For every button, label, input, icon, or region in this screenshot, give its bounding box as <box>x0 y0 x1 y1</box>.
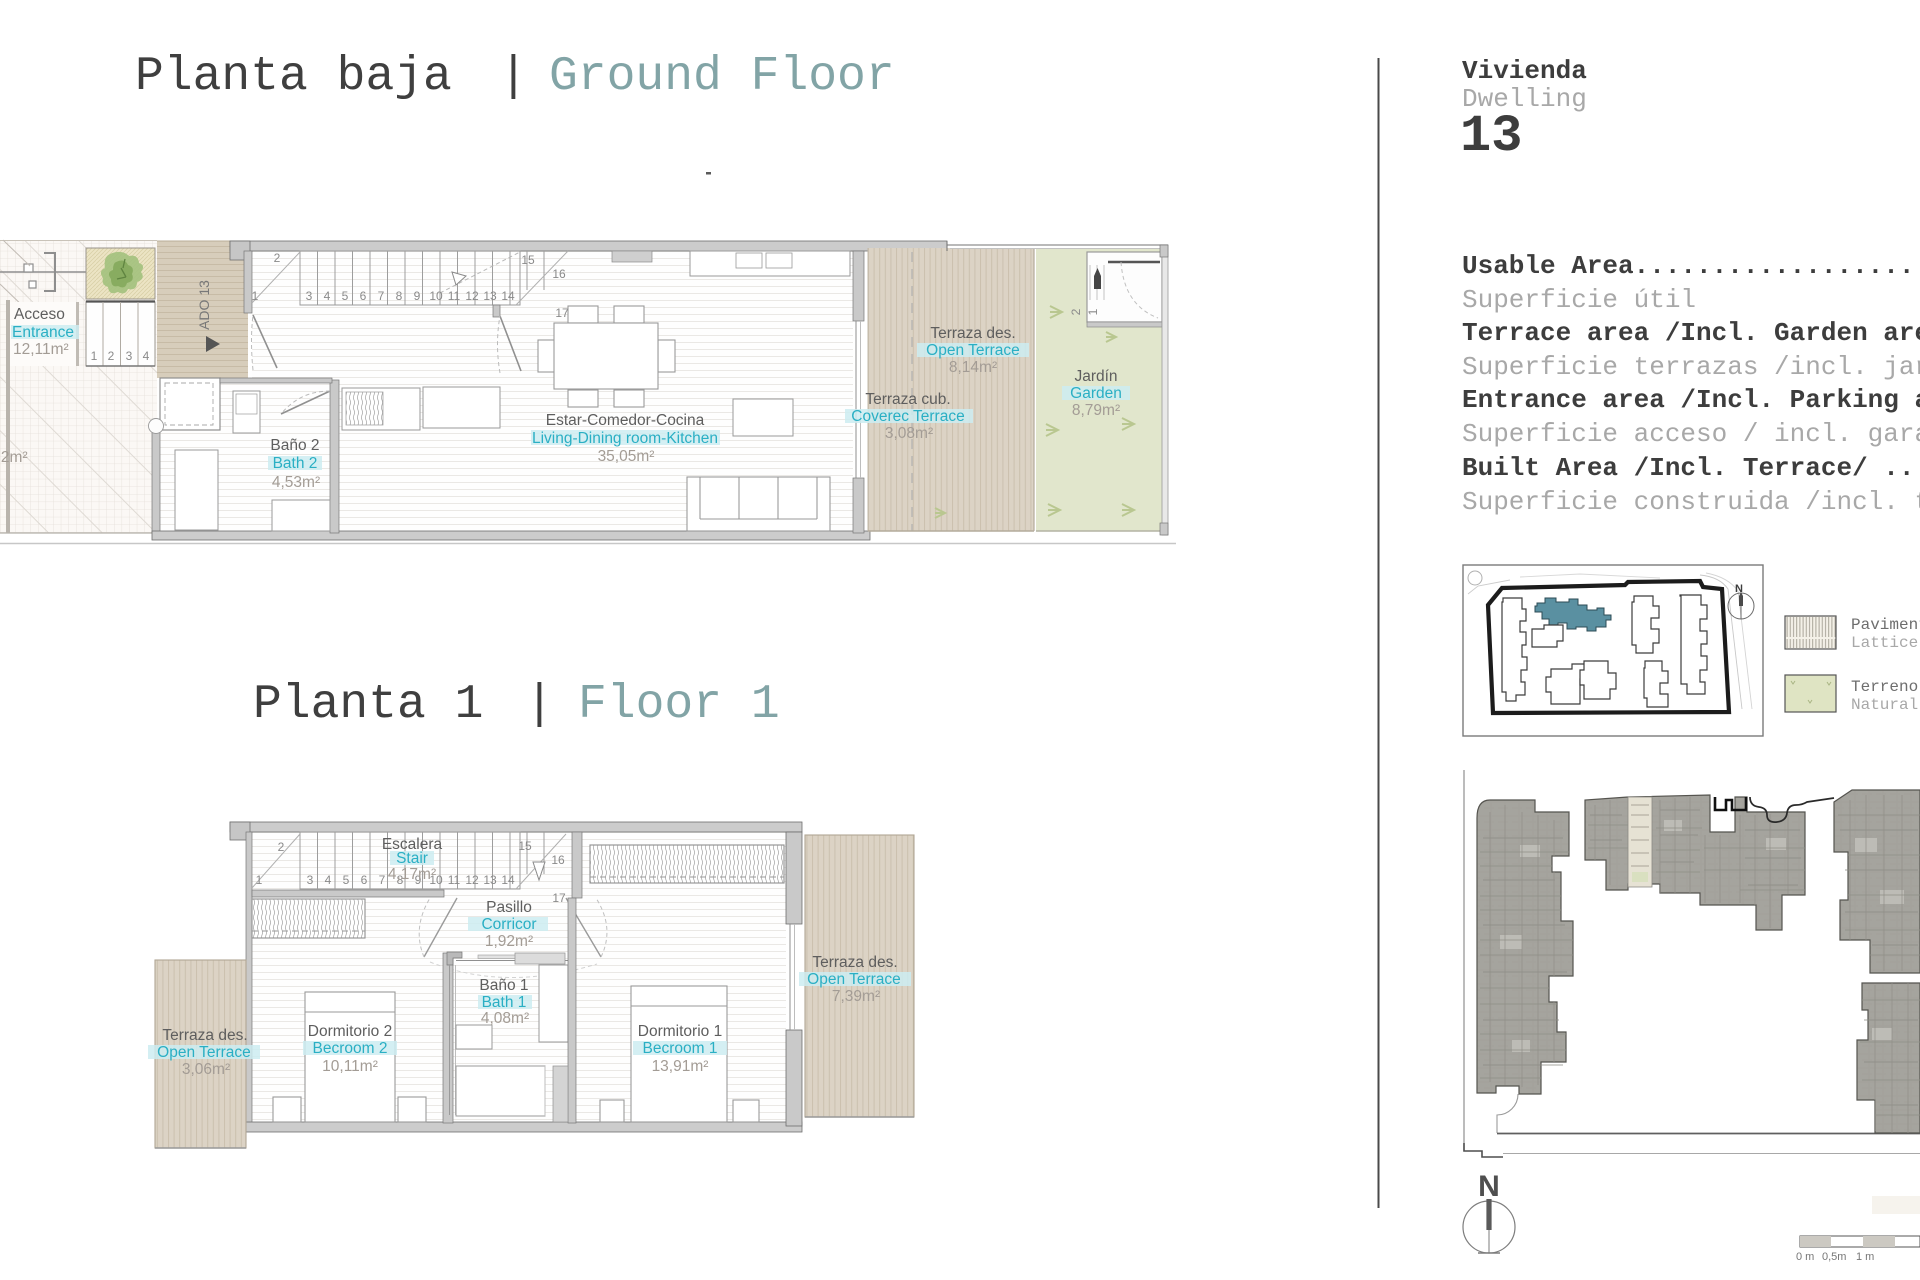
svg-text:7,39m²: 7,39m² <box>832 988 880 1005</box>
svg-text:Open Terrace: Open Terrace <box>157 1044 251 1061</box>
svg-text:5: 5 <box>343 873 350 887</box>
svg-text:8,14m²: 8,14m² <box>949 359 997 376</box>
svg-text:Acceso: Acceso <box>14 306 65 323</box>
svg-text:35,05m²: 35,05m² <box>598 448 655 465</box>
svg-text:Becroom 2: Becroom 2 <box>313 1040 388 1057</box>
svg-text:Entrance: Entrance <box>12 324 74 341</box>
svg-text:Estar-Comedor-Cocina: Estar-Comedor-Cocina <box>546 412 705 429</box>
svg-text:Coverec Terrace: Coverec Terrace <box>851 408 964 425</box>
svg-text:16: 16 <box>551 853 565 867</box>
svg-text:9: 9 <box>414 289 421 303</box>
svg-text:Floor 1: Floor 1 <box>578 678 780 732</box>
svg-text:Becroom 1: Becroom 1 <box>643 1040 718 1057</box>
svg-text:4: 4 <box>324 289 331 303</box>
svg-text:Terreno nat: Terreno nat <box>1851 678 1920 696</box>
svg-text:17: 17 <box>552 891 566 905</box>
svg-text:3: 3 <box>306 289 313 303</box>
svg-text:Natural gro: Natural gro <box>1851 696 1920 714</box>
svg-text:4,08m²: 4,08m² <box>481 1010 529 1027</box>
svg-text:8,79m²: 8,79m² <box>1072 402 1120 419</box>
svg-text:13: 13 <box>1460 107 1522 166</box>
svg-text:Built Area /Incl. Terrace/ ...: Built Area /Incl. Terrace/ ... <box>1462 453 1920 483</box>
svg-text:7: 7 <box>379 873 386 887</box>
svg-text:Open Terrace: Open Terrace <box>926 342 1020 359</box>
svg-text:Baño 1: Baño 1 <box>479 977 528 994</box>
svg-text:4,53m²: 4,53m² <box>272 474 320 491</box>
svg-text:1: 1 <box>256 873 263 887</box>
svg-text:Stair: Stair <box>396 850 428 867</box>
svg-text:3,08m²: 3,08m² <box>885 425 933 442</box>
svg-text:Superficie construida /incl. t: Superficie construida /incl. t <box>1462 487 1920 517</box>
svg-text:6: 6 <box>361 873 368 887</box>
svg-text:12: 12 <box>465 289 479 303</box>
svg-text:12: 12 <box>465 873 479 887</box>
svg-text:|: | <box>499 50 528 104</box>
svg-text:Corricor: Corricor <box>481 916 536 933</box>
svg-text:Dormitorio 1: Dormitorio 1 <box>638 1023 722 1040</box>
svg-text:Lattice pav: Lattice pav <box>1851 634 1920 652</box>
svg-text:Terraza cub.: Terraza cub. <box>865 391 950 408</box>
svg-text:1: 1 <box>1086 308 1100 315</box>
svg-text:8: 8 <box>396 289 403 303</box>
svg-text:Terraza des.: Terraza des. <box>162 1027 247 1044</box>
svg-text:13,91m²: 13,91m² <box>652 1058 709 1075</box>
svg-text:Planta 1: Planta 1 <box>253 678 483 732</box>
svg-text:15: 15 <box>521 253 535 267</box>
svg-text:2: 2 <box>108 349 115 363</box>
svg-text:Baño 2: Baño 2 <box>270 437 319 454</box>
svg-text:1: 1 <box>252 289 259 303</box>
svg-text:13: 13 <box>483 873 497 887</box>
svg-text:10,11m²: 10,11m² <box>322 1058 378 1075</box>
svg-text:Superficie terrazas /incl. jar: Superficie terrazas /incl. jar <box>1462 352 1920 382</box>
svg-text:13: 13 <box>483 289 497 303</box>
svg-text:1,92m²: 1,92m² <box>485 933 533 950</box>
svg-text:Usable Area...................: Usable Area................... <box>1462 251 1920 281</box>
svg-text:N: N <box>1735 583 1743 595</box>
svg-text:1: 1 <box>91 349 98 363</box>
svg-text:Ground Floor: Ground Floor <box>549 50 895 104</box>
svg-text:5: 5 <box>342 289 349 303</box>
svg-text:Open Terrace: Open Terrace <box>807 971 901 988</box>
svg-text:3: 3 <box>307 873 314 887</box>
svg-text:Bath 1: Bath 1 <box>482 994 527 1011</box>
svg-text:Jardín: Jardín <box>1074 368 1117 385</box>
svg-text:2: 2 <box>274 251 281 265</box>
svg-text:6: 6 <box>360 289 367 303</box>
svg-text:9,2m²: 9,2m² <box>0 449 28 466</box>
svg-text:4: 4 <box>325 873 332 887</box>
svg-text:10: 10 <box>429 289 443 303</box>
svg-text:2: 2 <box>1069 308 1083 315</box>
svg-text:3,06m²: 3,06m² <box>182 1061 230 1078</box>
svg-text:Terraza des.: Terraza des. <box>930 325 1015 342</box>
svg-text:Garden: Garden <box>1070 385 1122 402</box>
svg-text:17: 17 <box>555 306 569 320</box>
svg-text:1 m: 1 m <box>1856 1251 1874 1263</box>
svg-text:Planta baja: Planta baja <box>135 50 452 104</box>
svg-text:Vivienda: Vivienda <box>1462 56 1587 86</box>
svg-text:2: 2 <box>278 840 285 854</box>
svg-text:ADO 13: ADO 13 <box>196 280 212 330</box>
svg-text:Bath 2: Bath 2 <box>273 455 318 472</box>
svg-text:Dormitorio 2: Dormitorio 2 <box>308 1023 392 1040</box>
svg-text:14: 14 <box>501 873 515 887</box>
svg-text:Superficie acceso / incl. gara: Superficie acceso / incl. gara <box>1462 419 1920 449</box>
svg-text:Pasillo: Pasillo <box>486 899 532 916</box>
svg-text:3: 3 <box>126 349 133 363</box>
svg-text:16: 16 <box>552 267 566 281</box>
svg-text:Entrance area /Incl. Parking a: Entrance area /Incl. Parking a <box>1462 385 1920 415</box>
svg-text:4,17m²: 4,17m² <box>388 866 436 883</box>
svg-text:11: 11 <box>448 873 461 887</box>
svg-text:11: 11 <box>448 289 461 303</box>
svg-text:12,11m²: 12,11m² <box>13 341 69 358</box>
svg-text:N: N <box>1478 1170 1500 1203</box>
svg-text:Living-Dining room-Kitchen: Living-Dining room-Kitchen <box>532 430 718 447</box>
svg-text:0 m: 0 m <box>1796 1251 1814 1263</box>
svg-text:7: 7 <box>378 289 385 303</box>
svg-text:4: 4 <box>143 349 150 363</box>
svg-text:0,5m: 0,5m <box>1822 1251 1846 1263</box>
svg-text:Pavimento c: Pavimento c <box>1851 616 1920 634</box>
svg-text:Terraza des.: Terraza des. <box>812 954 897 971</box>
svg-text:|: | <box>525 678 554 732</box>
svg-text:Superficie útil: Superficie útil <box>1462 285 1696 315</box>
svg-text:14: 14 <box>501 289 515 303</box>
svg-text:15: 15 <box>518 839 532 853</box>
svg-text:Terrace area /Incl. Garden are: Terrace area /Incl. Garden area <box>1462 318 1920 348</box>
